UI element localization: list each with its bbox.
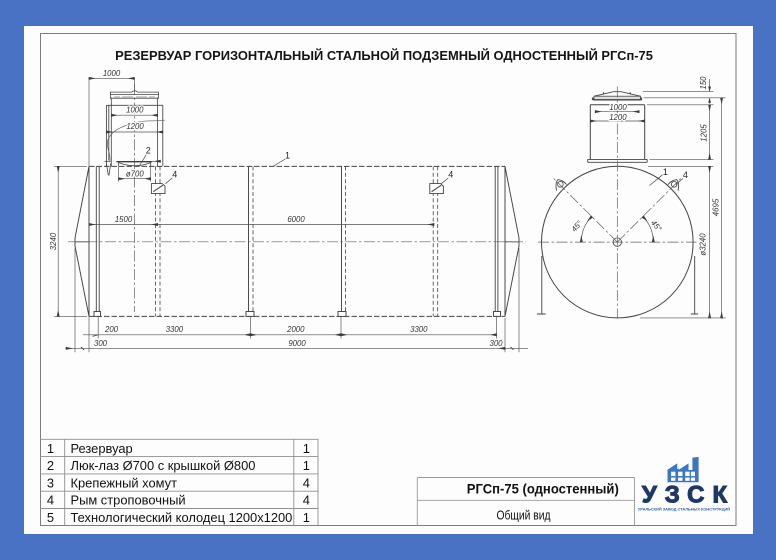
- svg-text:5: 5: [47, 510, 54, 525]
- svg-text:4: 4: [47, 493, 54, 508]
- svg-text:4695: 4695: [711, 198, 720, 216]
- svg-text:6000: 6000: [287, 215, 305, 224]
- svg-text:Крепежный хомут: Крепежный хомут: [71, 475, 178, 490]
- svg-text:УРАЛЬСКИЙ ЗАВОД СТАЛЬНЫХ КОНСТ: УРАЛЬСКИЙ ЗАВОД СТАЛЬНЫХ КОНСТРУКЦИЙ: [638, 507, 730, 512]
- svg-text:1: 1: [303, 441, 310, 456]
- svg-text:3300: 3300: [410, 325, 428, 334]
- svg-text:300: 300: [94, 339, 108, 348]
- svg-text:ø3240: ø3240: [698, 233, 707, 256]
- svg-text:1000: 1000: [609, 103, 627, 112]
- svg-text:2000: 2000: [286, 325, 305, 334]
- svg-text:УЗСК: УЗСК: [642, 481, 735, 508]
- svg-text:3: 3: [47, 475, 54, 490]
- svg-text:200: 200: [104, 325, 119, 334]
- svg-text:4: 4: [683, 170, 688, 180]
- svg-text:1205: 1205: [699, 124, 708, 142]
- svg-text:1000: 1000: [126, 106, 144, 115]
- svg-text:Технологический колодец 1200х1: Технологический колодец 1200х1200: [71, 510, 293, 525]
- svg-text:Рым строповочный: Рым строповочный: [71, 493, 186, 508]
- svg-text:1: 1: [303, 458, 310, 473]
- svg-text:Резервуар: Резервуар: [71, 441, 133, 456]
- svg-text:150: 150: [699, 76, 708, 90]
- svg-text:1200: 1200: [126, 122, 144, 131]
- svg-text:4: 4: [448, 170, 453, 180]
- svg-text:9000: 9000: [288, 339, 306, 348]
- svg-text:1: 1: [285, 150, 290, 160]
- svg-text:1500: 1500: [115, 215, 133, 224]
- svg-text:2: 2: [146, 146, 151, 156]
- svg-text:3300: 3300: [166, 325, 184, 334]
- svg-text:РЕЗЕРВУАР ГОРИЗОНТАЛЬНЫЙ СТАЛЬ: РЕЗЕРВУАР ГОРИЗОНТАЛЬНЫЙ СТАЛЬНОЙ ПОДЗЕМ…: [115, 48, 653, 63]
- svg-text:1: 1: [303, 510, 310, 525]
- svg-text:РГСп-75 (одностенный): РГСп-75 (одностенный): [467, 481, 619, 496]
- svg-text:1: 1: [663, 167, 668, 177]
- svg-text:4: 4: [303, 493, 310, 508]
- svg-text:4: 4: [303, 475, 310, 490]
- svg-text:1: 1: [47, 441, 54, 456]
- svg-text:1000: 1000: [103, 69, 121, 78]
- svg-text:1200: 1200: [609, 113, 627, 122]
- svg-text:300: 300: [489, 339, 503, 348]
- svg-text:Общий вид: Общий вид: [497, 507, 551, 522]
- svg-text:2: 2: [47, 458, 54, 473]
- svg-text:3240: 3240: [49, 232, 58, 250]
- svg-text:4: 4: [172, 170, 177, 180]
- svg-text:ø700: ø700: [126, 169, 144, 178]
- svg-text:Люк-лаз Ø700 с крышкой Ø800: Люк-лаз Ø700 с крышкой Ø800: [71, 458, 256, 473]
